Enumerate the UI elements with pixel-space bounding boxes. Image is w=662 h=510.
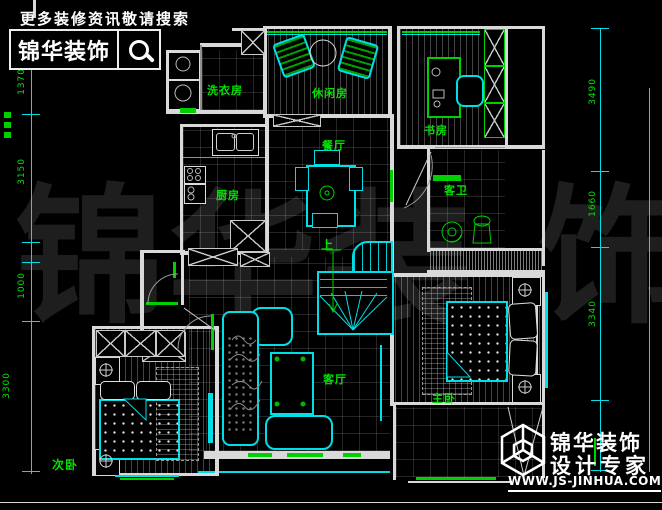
room-label-living: 客厅: [323, 371, 347, 387]
dim-value: 1370: [17, 68, 27, 95]
laundry-shelf: [180, 108, 196, 113]
nightstand: [512, 374, 541, 403]
dim-tick: [591, 400, 609, 401]
room-label-dining: 餐厅: [322, 137, 346, 153]
dim-tick: [22, 114, 40, 115]
wall-segment: [408, 481, 512, 483]
dim-tick: [22, 471, 40, 472]
brand-name: 锦华装饰: [11, 34, 117, 66]
door-leaf: [211, 314, 214, 350]
door-leaf: [146, 302, 178, 305]
window-line: [120, 478, 174, 480]
hall-cabinet: [188, 248, 238, 266]
bay-window: [545, 292, 548, 388]
sink-basin: [236, 133, 254, 151]
wall-segment: [542, 26, 545, 146]
pillow: [508, 302, 538, 340]
wall-segment: [397, 26, 400, 148]
window-line: [343, 453, 361, 457]
bath-floor: [430, 150, 505, 248]
bookcase: [484, 103, 505, 138]
room-label-kitchen: 厨房: [216, 187, 240, 203]
desk-chair: [456, 75, 484, 107]
left-edge-marks: [4, 132, 11, 138]
room-label-study: 书房: [424, 122, 448, 138]
window-line: [248, 453, 272, 457]
wall-segment: [427, 248, 545, 251]
window-line: [435, 147, 505, 148]
wardrobe-box: [156, 330, 185, 357]
footer-website: WWW.JS-JINHUA.COM: [508, 474, 661, 492]
bath-shelf: [433, 175, 461, 181]
stairs-up-label: 上: [321, 236, 334, 253]
floorplan-canvas: 锦 华 装 饰: [0, 0, 662, 510]
window-line: [416, 477, 496, 480]
dining-chair: [295, 167, 309, 191]
dim-value: 3150: [17, 158, 27, 185]
window-line: [287, 453, 323, 457]
dim-tick: [591, 171, 609, 172]
room-label-leisure: 休闲房: [312, 85, 348, 101]
partition-line: [380, 345, 382, 421]
wardrobe-band: [430, 251, 542, 270]
dining-chair: [349, 167, 363, 191]
stair-treads: [320, 274, 387, 296]
window-line: [267, 34, 387, 35]
dim-tick: [591, 247, 609, 248]
wall-segment: [505, 26, 508, 148]
room-label-laundry: 洗衣房: [207, 82, 243, 98]
room-label-master: 主卧: [432, 390, 456, 406]
dim-line-outer: [649, 88, 650, 472]
wardrobe-box: [125, 330, 156, 357]
wall-segment: [140, 250, 144, 332]
wall-segment: [181, 255, 184, 305]
balcony-edge: [198, 471, 390, 473]
bookcase: [484, 29, 505, 66]
door-leaf: [173, 262, 176, 278]
dim-tick: [591, 28, 609, 29]
wall-segment: [215, 326, 219, 476]
sliding-door: [273, 114, 321, 127]
sofa-pillows: [226, 335, 252, 435]
wall-segment: [509, 26, 545, 29]
left-edge-marks: [4, 112, 11, 118]
wall-segment: [388, 26, 392, 118]
window-line: [267, 31, 387, 33]
dim-line-right: [600, 28, 601, 472]
hall-cabinet: [240, 252, 270, 267]
room-label-guest-bath: 客卫: [444, 182, 468, 198]
bay-window: [208, 393, 213, 443]
counter-edge: [183, 157, 265, 158]
bookcase: [484, 66, 505, 103]
wall-segment: [180, 124, 265, 127]
dim-line-left: [31, 60, 32, 474]
stove: [184, 184, 206, 204]
washer-unit: [168, 52, 200, 80]
wall-segment: [180, 124, 183, 254]
pillow: [508, 339, 538, 376]
dim-value: 1000: [17, 272, 27, 299]
wall-segment: [393, 402, 396, 480]
coffee-table: [270, 352, 314, 415]
dim-value: 3340: [588, 300, 598, 327]
wardrobe-box: [96, 330, 125, 357]
wall-segment: [140, 250, 185, 253]
pillow: [100, 381, 135, 400]
promo-text: 更多装修资讯敬请搜索: [20, 8, 190, 29]
master-bed-blanket: [446, 301, 508, 382]
dim-value: 1660: [588, 190, 598, 217]
dining-chair: [312, 213, 338, 228]
dim-value: 3300: [2, 372, 12, 399]
wall-segment: [200, 45, 202, 111]
window-line: [390, 170, 393, 202]
pillow: [136, 381, 171, 400]
wall-segment: [92, 326, 219, 329]
armchair: [265, 415, 333, 450]
room-label-secondary: 次卧: [52, 456, 78, 473]
stove: [184, 166, 206, 184]
shaft-box: [241, 30, 265, 55]
dim-value: 3490: [588, 78, 598, 105]
page-rule: [0, 502, 662, 503]
washer-unit: [168, 80, 200, 110]
left-edge-marks: [4, 122, 11, 128]
magnifier-icon: [129, 40, 149, 60]
dim-tick: [22, 262, 40, 263]
dim-tick: [22, 321, 40, 322]
nightstand: [512, 277, 541, 306]
brand-search-logo: 锦华装饰: [9, 29, 161, 70]
search-icon-cell: [119, 40, 159, 60]
dim-tick: [22, 242, 40, 243]
window-line: [115, 475, 179, 477]
cube-logo-icon: [498, 423, 548, 479]
wall-segment: [427, 149, 430, 252]
window-line: [402, 31, 480, 33]
wall-segment: [263, 26, 391, 29]
window-line: [402, 34, 480, 35]
sink-basin: [216, 133, 235, 151]
